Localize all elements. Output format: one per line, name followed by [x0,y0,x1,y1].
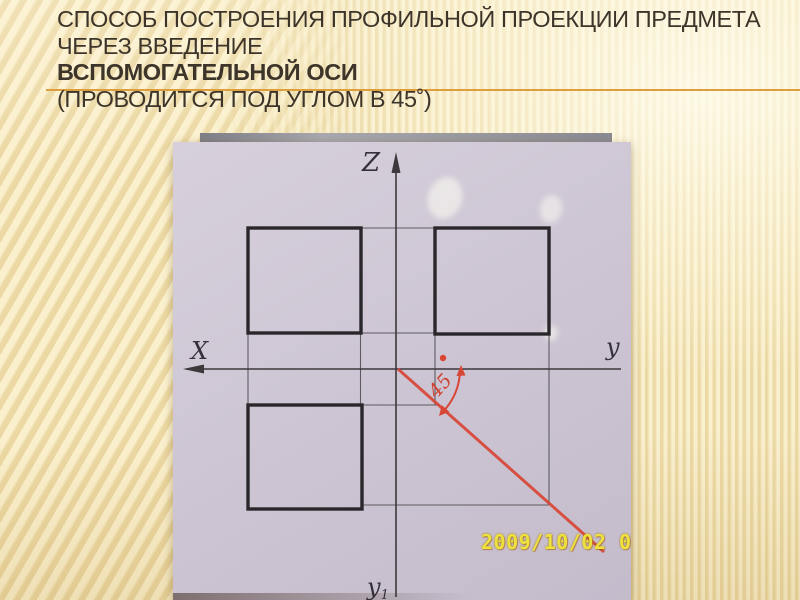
x-axis-label: X [189,337,209,365]
title-line-4: (ПРОВОДИТСЯ ПОД УГЛОМ В 45˚) [57,86,777,113]
slide-title: СПОСОБ ПОСТРОЕНИЯ ПРОФИЛЬНОЙ ПРОЕКЦИИ ПР… [57,6,777,112]
tape-smudges [422,173,564,341]
photo-bottom-shadow [173,593,471,600]
auxiliary-45-line [398,369,604,552]
title-line-3: ВСПОМОГАТЕЛЬНОЙ ОСИ [57,59,777,86]
square-top-view [248,405,362,509]
x-axis-arrowhead [183,365,204,374]
z-axis-arrowhead [392,152,401,173]
angle-arc-arrow-top [457,365,466,376]
slide: СПОСОБ ПОСТРОЕНИЯ ПРОФИЛЬНОЙ ПРОЕКЦИИ ПР… [0,0,800,600]
camera-timestamp: 2009/10/02 00 [481,530,631,554]
photo-of-drawing: 45 Z X y y1 2009/10/02 00 [173,142,631,600]
y-axis-label: y [605,333,620,361]
square-front-view [248,228,361,333]
title-line-1: СПОСОБ ПОСТРОЕНИЯ ПРОФИЛЬНОЙ ПРОЕКЦИИ ПР… [57,6,777,33]
square-profile-view [435,228,549,334]
red-dot [440,355,446,361]
title-line-2: ЧЕРЕЗ ВВЕДЕНИЕ [57,33,777,60]
z-axis-label: Z [361,148,381,178]
